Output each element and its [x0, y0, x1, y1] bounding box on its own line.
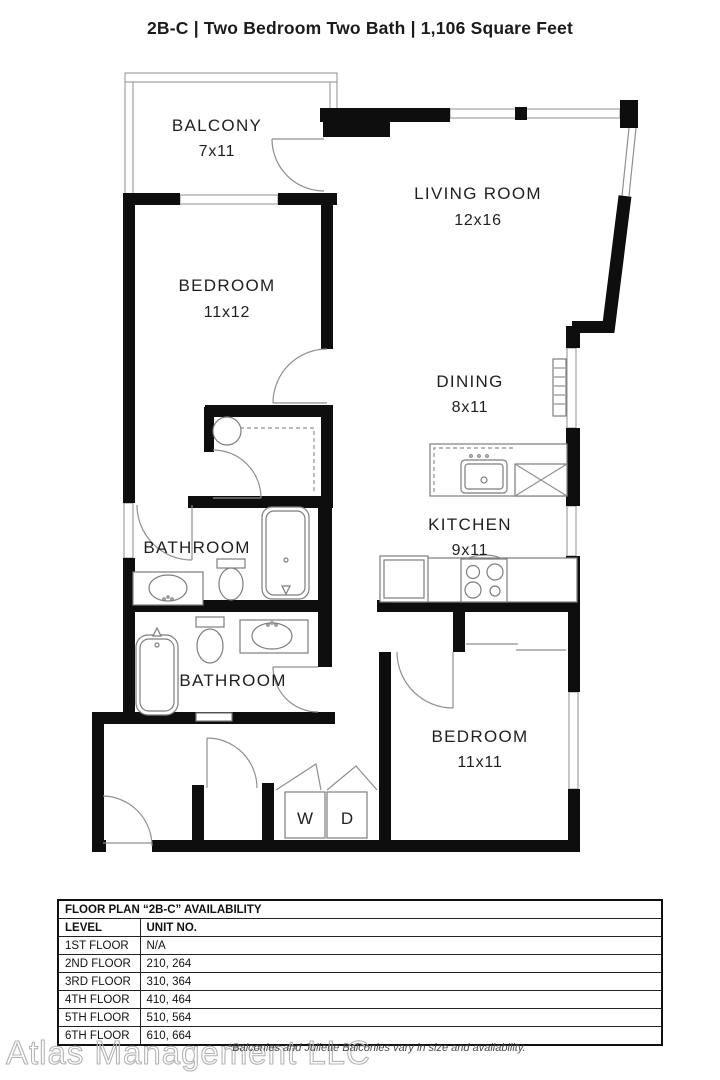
label-kitchen: KITCHEN — [428, 515, 512, 534]
cell-units: N/A — [140, 937, 662, 955]
bathroom1-bathtub — [262, 507, 309, 599]
label-dining: DINING — [436, 372, 503, 391]
cell-level: 3RD FLOOR — [58, 973, 140, 991]
label-living-room: LIVING ROOM — [414, 184, 542, 203]
table-row: 5TH FLOOR 510, 564 — [58, 1009, 662, 1027]
availability-note: *Balconies and Juliette Balconies vary i… — [228, 1042, 526, 1054]
heater — [553, 359, 566, 416]
cell-level: 5TH FLOOR — [58, 1009, 140, 1027]
bathroom1-toilet — [217, 559, 245, 600]
bedroom1-door — [273, 349, 327, 403]
floor-plan-page: 2B-C | Two Bedroom Two Bath | 1,106 Squa… — [0, 0, 720, 1080]
bedroom2-door — [397, 652, 453, 708]
cell-units: 510, 564 — [140, 1009, 662, 1027]
cell-units: 410, 464 — [140, 991, 662, 1009]
label-bedroom1: BEDROOM — [179, 276, 276, 295]
bathroom2-bathtub — [136, 628, 178, 715]
closet-door — [213, 450, 261, 498]
balcony-door — [272, 139, 324, 191]
cell-units: 210, 264 — [140, 955, 662, 973]
table-row: 3RD FLOOR 310, 364 — [58, 973, 662, 991]
bathroom2-toilet — [196, 617, 224, 663]
col-header-unit-no: UNIT NO. — [140, 919, 662, 937]
table-row: 2ND FLOOR 210, 264 — [58, 955, 662, 973]
laundry-bifold-doors — [276, 764, 377, 790]
entry-door — [103, 796, 152, 846]
bathroom1-vanity-sink — [133, 572, 203, 605]
availability-table: FLOOR PLAN “2B-C” AVAILABILITY LEVEL UNI… — [57, 899, 663, 1046]
stove — [461, 555, 507, 602]
label-bedroom2: BEDROOM — [432, 727, 529, 746]
label-kitchen-dims: 9x11 — [452, 542, 489, 559]
cell-level: 1ST FLOOR — [58, 937, 140, 955]
hall-closet-door — [207, 738, 257, 788]
dishwasher — [515, 464, 567, 496]
label-bedroom2-dims: 11x11 — [457, 754, 502, 771]
floor-plan: BALCONY 7x11 LIVING ROOM 12x16 BEDROOM 1… — [0, 0, 720, 880]
label-living-room-dims: 12x16 — [454, 212, 502, 229]
table-row: 4TH FLOOR 410, 464 — [58, 991, 662, 1009]
table-title: FLOOR PLAN “2B-C” AVAILABILITY — [58, 900, 662, 919]
refrigerator — [380, 556, 428, 602]
label-balcony-dims: 7x11 — [199, 143, 236, 160]
cell-units: 310, 364 — [140, 973, 662, 991]
cell-level: 2ND FLOOR — [58, 955, 140, 973]
label-bathroom2: BATHROOM — [179, 671, 286, 690]
walk-in-closet-fixture — [213, 417, 314, 492]
bathroom2-threshold — [196, 713, 232, 721]
label-bathroom1: BATHROOM — [143, 538, 250, 557]
label-washer: W — [297, 809, 313, 828]
cell-level: 4TH FLOOR — [58, 991, 140, 1009]
col-header-level: LEVEL — [58, 919, 140, 937]
bedroom2-sliding-door — [466, 644, 566, 650]
table-row: 1ST FLOOR N/A — [58, 937, 662, 955]
bathroom2-vanity-sink — [240, 620, 308, 653]
label-balcony: BALCONY — [172, 116, 262, 135]
label-dryer: D — [341, 809, 353, 828]
label-dining-dims: 8x11 — [452, 399, 489, 416]
label-bedroom1-dims: 11x12 — [204, 304, 250, 321]
